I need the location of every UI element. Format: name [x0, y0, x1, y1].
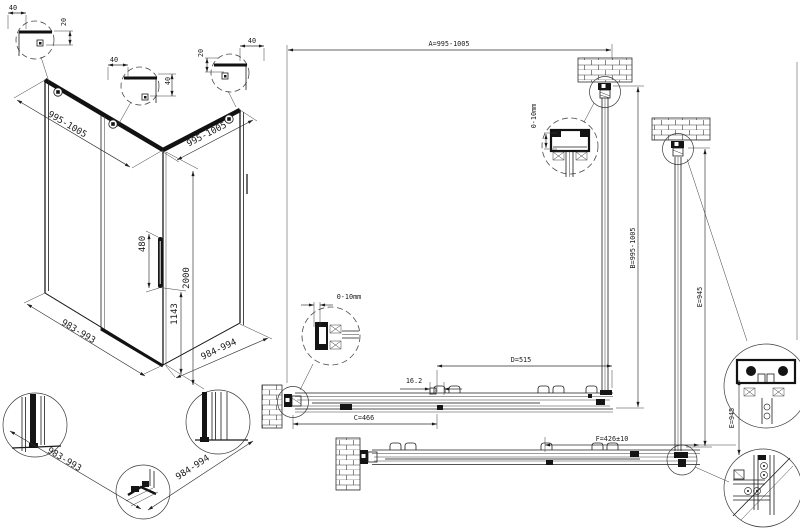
track-1	[295, 386, 613, 412]
corner-junction-detail	[695, 449, 800, 527]
dim-e-side: E=945	[696, 287, 704, 307]
dim-label: 40	[164, 77, 172, 85]
dim-c: C=466	[354, 414, 374, 422]
dim-base-side: 984-994	[200, 337, 239, 362]
shower-enclosure-drawing: 40 20 40 40 20 40 9	[0, 0, 800, 528]
brick-wall-left-1	[262, 385, 282, 428]
dim-label: 20	[197, 49, 205, 57]
roller-cap-icon	[225, 115, 233, 123]
roller-icon	[586, 386, 597, 393]
dim-label: 40	[110, 56, 118, 64]
iso-dimensions: 995-1005 995-1005 480 2000 1143 983-993 …	[14, 80, 272, 389]
dim-a: A=995-1005	[429, 40, 470, 48]
dim-e-inner: E=945	[728, 408, 736, 428]
dim-detail-side: 984-994	[174, 453, 211, 482]
roller-icon	[553, 386, 564, 393]
base-detail-front	[3, 393, 67, 457]
isometric-view: 40 20 40 40 20 40 9	[8, 4, 272, 389]
screw-icon	[744, 388, 755, 396]
roller-cap-icon	[109, 120, 117, 128]
roller-cap-icon	[54, 88, 62, 96]
dim-label: 40	[9, 4, 17, 12]
dim-adjust-left: 0-10mm	[337, 293, 362, 301]
corner-detail-right: 20 40	[197, 37, 264, 107]
wall-profile-detail-left: 0-10mm	[300, 293, 361, 390]
screw-icon	[553, 152, 564, 160]
corner-detail-mid: 40 40	[108, 56, 176, 127]
base-profile-details: 983-993 984-994	[3, 390, 253, 519]
track-2	[372, 443, 700, 475]
dim-detail-front: 983-993	[45, 446, 83, 474]
corner-detail-left: 40 20	[8, 4, 73, 82]
dim-label: 20	[60, 18, 68, 26]
screw-icon	[773, 388, 784, 396]
dim-d: D=515	[511, 356, 531, 364]
roller-icon	[592, 443, 603, 450]
dim-top-left: 995-1005	[46, 110, 88, 141]
brick-wall-left-2	[336, 438, 360, 490]
glass-wall-side	[163, 110, 247, 365]
roller-icon	[405, 443, 416, 450]
brick-wall-top-2	[652, 118, 710, 140]
base-detail-corner	[116, 465, 170, 519]
roller-icon	[538, 386, 549, 393]
dim-base-front: 983-993	[59, 318, 97, 346]
screw-icon	[330, 325, 341, 333]
door-handle	[158, 237, 163, 288]
roller-icon	[449, 386, 460, 393]
screw-icon	[330, 341, 341, 349]
dim-gap: 16.2	[406, 377, 422, 385]
dim-handle-length: 480	[138, 236, 148, 252]
roller-icon	[607, 443, 618, 450]
screw-icon	[576, 152, 587, 160]
roller-icon	[541, 443, 552, 450]
dim-b: B=995-1005	[629, 228, 637, 269]
dim-f: F=426±10	[596, 435, 629, 443]
roller-icon	[390, 443, 401, 450]
brick-wall-top-1	[578, 58, 632, 82]
wall-profile-detail-top: 0-10mm	[530, 103, 598, 177]
dim-handle-position: 1143	[170, 303, 180, 325]
technical-drawing-canvas: 40 20 40 40 20 40 9	[0, 0, 800, 528]
dim-height: 2000	[182, 267, 192, 289]
dim-adjust-top: 0-10mm	[530, 104, 538, 129]
plan-view: A=995-1005 B=995-1005 0-10mm	[262, 40, 800, 527]
base-detail-side	[186, 390, 250, 454]
dim-label: 40	[248, 37, 256, 45]
